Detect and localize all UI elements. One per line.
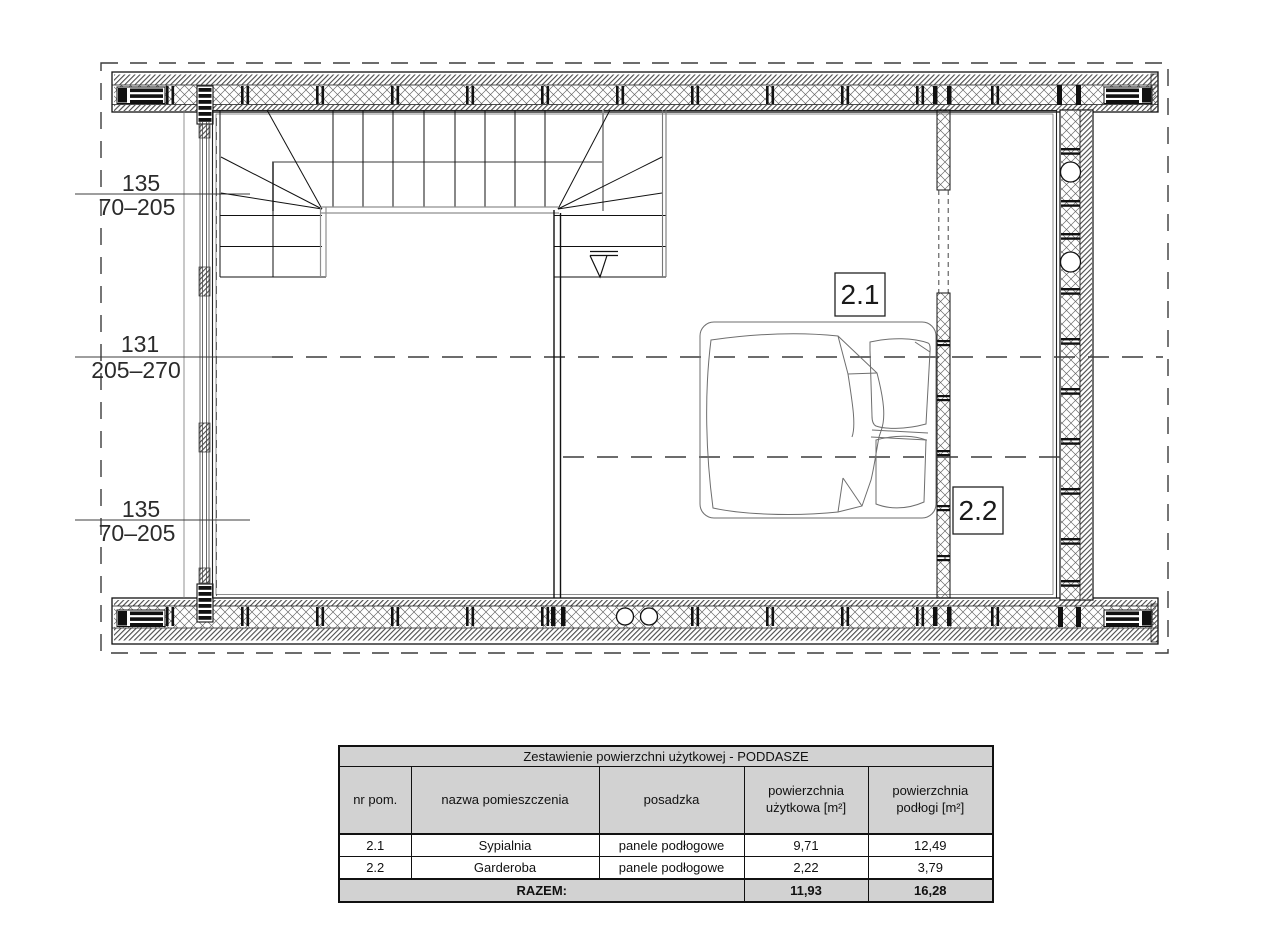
roof-outline-dashed	[101, 63, 1168, 653]
table-total-row: RAZEM: 11,93 16,28	[339, 879, 993, 902]
dim-range-2: 205–270	[91, 357, 181, 383]
col-header-floor: posadzka	[599, 767, 744, 835]
room-label-bedroom: 2.1	[835, 273, 885, 316]
floor-plan-drawing: 2.1 2.2 135 70–205 131 205–270 135 70–20…	[0, 0, 1262, 720]
stair-right-edge	[663, 110, 667, 277]
room-label-wardrobe-text: 2.2	[959, 495, 998, 526]
stair-flight-right	[554, 216, 666, 278]
col-header-usable-area: powierzchnia użytkowa [m²]	[744, 767, 868, 835]
cell-usable: 2,22	[744, 857, 868, 880]
stairwell-opening	[273, 110, 603, 211]
window-band-bottom-anchor	[197, 584, 213, 622]
top-wall	[112, 72, 1158, 124]
room-label-bedroom-text: 2.1	[841, 279, 880, 310]
top-wall-right-wrap	[1151, 74, 1158, 112]
stair-treads-upper	[333, 110, 545, 207]
staircase	[220, 110, 666, 277]
window-band-top-anchor	[197, 86, 213, 124]
right-wall-post-circle	[1061, 162, 1081, 182]
area-table: Zestawienie powierzchni użytkowej - PODD…	[338, 745, 992, 903]
bottom-wall-right-wrap	[1151, 604, 1158, 642]
table-row: 2.2 Garderoba panele podłogowe 2,22 3,79	[339, 857, 993, 880]
bottom-wall-duct-circle	[617, 608, 634, 625]
bottom-wall	[112, 584, 1158, 644]
total-floor-area: 16,28	[868, 879, 993, 902]
double-bed	[700, 322, 936, 518]
cell-nr: 2.1	[339, 834, 411, 857]
partition-wall	[937, 110, 950, 598]
total-label: RAZEM:	[339, 879, 744, 902]
dim-range-1: 70–205	[99, 194, 176, 220]
wall-end-block-top-right	[1104, 87, 1152, 104]
bottom-wall-duct-circle	[641, 608, 658, 625]
table-header-row: nr pom. nazwa pomieszczenia posadzka pow…	[339, 767, 993, 835]
room-label-wardrobe: 2.2	[953, 487, 1003, 534]
height-zone-labels: 135 70–205 131 205–270 135 70–205	[91, 170, 181, 546]
dim-range-3: 70–205	[99, 520, 176, 546]
cell-floor: panele podłogowe	[599, 857, 744, 880]
right-wall-post-circle	[1061, 252, 1081, 272]
attic-floor-plan-sheet: 2.1 2.2 135 70–205 131 205–270 135 70–20…	[0, 0, 1262, 948]
table-row: 2.1 Sypialnia panele podłogowe 9,71 12,4…	[339, 834, 993, 857]
pillow	[876, 436, 926, 508]
stair-railing	[321, 207, 560, 277]
cell-floor: panele podłogowe	[599, 834, 744, 857]
right-wall	[1060, 110, 1093, 600]
stair-flight-left	[220, 110, 326, 277]
cell-usable: 9,71	[744, 834, 868, 857]
wall-end-block-bottom-left	[117, 610, 165, 627]
cell-name: Sypialnia	[411, 834, 599, 857]
col-header-nr: nr pom.	[339, 767, 411, 835]
wall-end-block-bottom-right	[1104, 610, 1152, 627]
cell-nr: 2.2	[339, 857, 411, 880]
duvet	[707, 334, 884, 515]
col-header-name: nazwa pomieszczenia	[411, 767, 599, 835]
dim-height-2: 131	[121, 331, 159, 357]
pillow	[870, 339, 930, 429]
left-window-band	[199, 122, 210, 584]
cell-floor-area: 3,79	[868, 857, 993, 880]
bedroom-dividing-wall	[554, 210, 561, 598]
height-zone-lines	[75, 194, 1163, 520]
cell-floor-area: 12,49	[868, 834, 993, 857]
col-header-floor-area: powierzchnia podłogi [m²]	[868, 767, 993, 835]
stair-direction-arrow	[590, 252, 618, 278]
wall-end-block-top-left	[117, 87, 165, 104]
table-title: Zestawienie powierzchni użytkowej - PODD…	[339, 746, 993, 767]
dim-height-1: 135	[122, 170, 160, 196]
total-usable: 11,93	[744, 879, 868, 902]
cell-name: Garderoba	[411, 857, 599, 880]
stair-winders	[221, 110, 662, 209]
dim-height-3: 135	[122, 496, 160, 522]
